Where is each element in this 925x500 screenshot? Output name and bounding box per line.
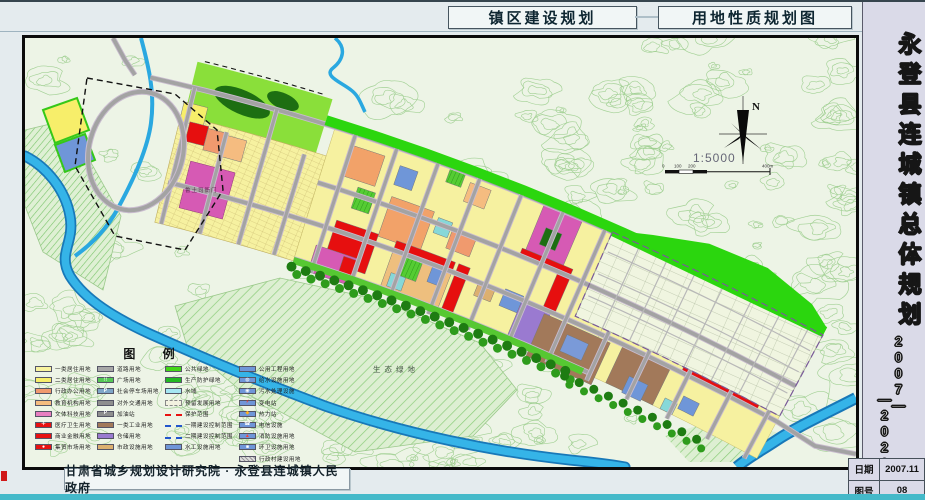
tree-row <box>493 344 502 353</box>
tree-row <box>301 266 311 276</box>
yamen-label: 鲁土司衙门 <box>185 186 218 194</box>
tree-row <box>421 315 430 324</box>
tree-row <box>653 422 661 430</box>
tree-row <box>387 295 397 305</box>
tree-row <box>430 312 440 322</box>
tree-row <box>683 437 691 445</box>
tree-row <box>522 356 531 365</box>
tree-row <box>560 372 569 381</box>
title-right: 用地性质规划图 <box>658 6 852 29</box>
tree-row <box>459 323 469 333</box>
tree-row <box>546 359 556 369</box>
date-label: 日期 <box>849 459 879 480</box>
tree-row <box>307 275 316 284</box>
scale-mark: 100 <box>674 164 682 169</box>
tree-row <box>435 320 444 329</box>
tree-row <box>633 406 642 415</box>
tree-row <box>508 350 517 359</box>
scale-mark: 200 <box>688 164 696 169</box>
tree-row <box>697 444 705 452</box>
edge-mark <box>1 471 7 481</box>
tree-row <box>502 341 512 351</box>
tree-row <box>663 420 672 429</box>
tree-row <box>488 335 498 345</box>
tree-row <box>444 317 454 327</box>
tree-row <box>364 294 373 303</box>
tree-row <box>358 285 368 295</box>
tree-row <box>392 304 401 313</box>
plan-title-vertical: 永登县连城镇总体规划 <box>863 32 925 332</box>
tree-row <box>407 310 416 319</box>
scale-mark: 400m <box>762 164 774 169</box>
tree-row <box>677 427 686 436</box>
scale-text: 1:5000 <box>693 151 736 165</box>
tree-row <box>378 299 387 308</box>
tree-row <box>464 332 473 341</box>
tree-row <box>624 408 632 416</box>
tree-row <box>668 430 676 438</box>
tree-row <box>565 381 573 389</box>
map-frame: N 1:5000 0 100 200 400m 鲁土司衙门 生态绿地 图 例 一… <box>22 35 859 470</box>
tree-row <box>619 399 628 408</box>
tree-row <box>292 270 301 279</box>
tree-row <box>372 290 382 300</box>
tree-row <box>551 369 560 378</box>
tree-row <box>595 394 603 402</box>
tree-row <box>335 284 344 293</box>
map-canvas: N 1:5000 0 100 200 400m 鲁土司衙门 生态绿地 <box>25 38 856 467</box>
plan-sheet: 镇区建设规划 用地性质规划图 <box>0 0 925 500</box>
tree-row <box>349 289 358 298</box>
tree-row <box>604 392 613 401</box>
tree-row <box>692 435 701 444</box>
tree-row <box>517 347 527 357</box>
tree-row <box>589 385 598 394</box>
plan-period-start: 2007— <box>891 334 906 414</box>
tree-row <box>575 378 584 387</box>
header-bar: 镇区建设规划 用地性质规划图 <box>0 2 862 32</box>
tree-row <box>473 329 483 339</box>
tree-row <box>531 353 541 363</box>
tree-row <box>287 262 297 272</box>
tree-row <box>479 338 488 347</box>
tree-row <box>344 280 354 290</box>
tree-row <box>415 306 425 316</box>
tree-row <box>580 387 588 395</box>
title-connector <box>635 16 658 18</box>
tree-row <box>321 279 330 288</box>
tree-row <box>638 415 646 423</box>
bottom-border-strip <box>0 494 925 500</box>
date-value: 2007.11 <box>880 459 924 480</box>
tree-row <box>401 301 411 311</box>
tree-row <box>450 326 459 335</box>
tree-row <box>609 401 617 409</box>
tree-row <box>315 271 325 281</box>
title-left: 镇区建设规划 <box>448 6 637 29</box>
tree-row <box>648 413 657 422</box>
north-label: N <box>752 101 760 113</box>
tree-row <box>537 362 546 371</box>
credit-box: 甘肃省城乡规划设计研究院 · 永登县连城镇人民政府 <box>64 468 350 490</box>
title-block-sidebar: 永登县连城镇总体规划 2007— —2020 日期 2007.11 图号 08 <box>862 2 925 500</box>
tree-row <box>329 275 339 285</box>
eco-green-label: 生态绿地 <box>373 364 419 374</box>
